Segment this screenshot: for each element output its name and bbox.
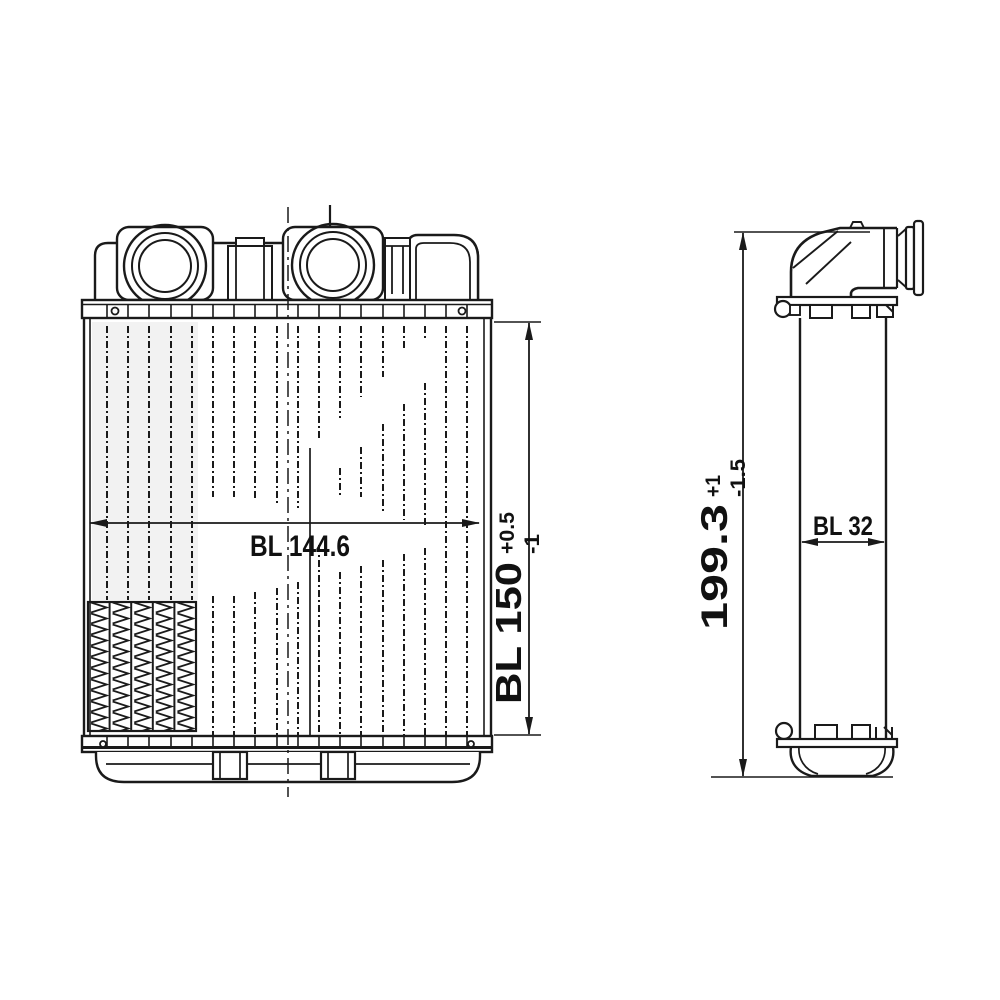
side-bottom-tank <box>791 747 894 776</box>
dim-side-height-text: 199.3 +1 -1.5 <box>694 459 750 630</box>
heater-core-technical-drawing: BL 144.6 BL 150 +0.5 -1 <box>0 0 1000 1000</box>
front-view <box>82 205 492 797</box>
arrow-down-icon <box>525 717 533 735</box>
side-top-header <box>775 297 897 318</box>
arrow-up-icon <box>739 232 747 250</box>
side-view <box>775 221 923 776</box>
mounting-foot <box>321 752 355 779</box>
dim-side-depth-label: BL 32 <box>813 511 873 541</box>
dim-side-height-label: 199.3 <box>694 504 735 630</box>
dim-front-height-text: BL 150 +0.5 -1 <box>488 512 544 704</box>
dim-side-height-tol-minus: -1.5 <box>727 459 750 497</box>
dim-side-height-tol-plus: +1 <box>702 475 725 497</box>
drain-line <box>306 448 314 744</box>
dim-front-height-tol-plus: +0.5 <box>496 512 519 554</box>
port-housing-right <box>283 227 383 300</box>
arrow-right-icon <box>462 519 480 527</box>
flange-icon <box>898 221 923 295</box>
mounting-foot <box>213 752 247 779</box>
front-bottom-header <box>82 736 492 752</box>
dimension-side-depth: BL 32 <box>801 511 885 546</box>
dim-front-height-label: BL 150 <box>488 562 529 704</box>
drawing-page: BL 144.6 BL 150 +0.5 -1 <box>0 0 1000 1000</box>
dim-front-height-tol-minus: -1 <box>521 534 544 554</box>
front-top-tank <box>95 224 478 307</box>
front-top-header <box>82 300 492 318</box>
arrow-down-icon <box>739 759 747 777</box>
side-bottom-header <box>776 723 897 747</box>
fin-detail-block <box>88 602 196 731</box>
dimension-front-height: BL 150 +0.5 -1 <box>488 322 544 735</box>
arrow-up-icon <box>525 322 533 340</box>
dim-front-width-label: BL 144.6 <box>250 530 350 563</box>
